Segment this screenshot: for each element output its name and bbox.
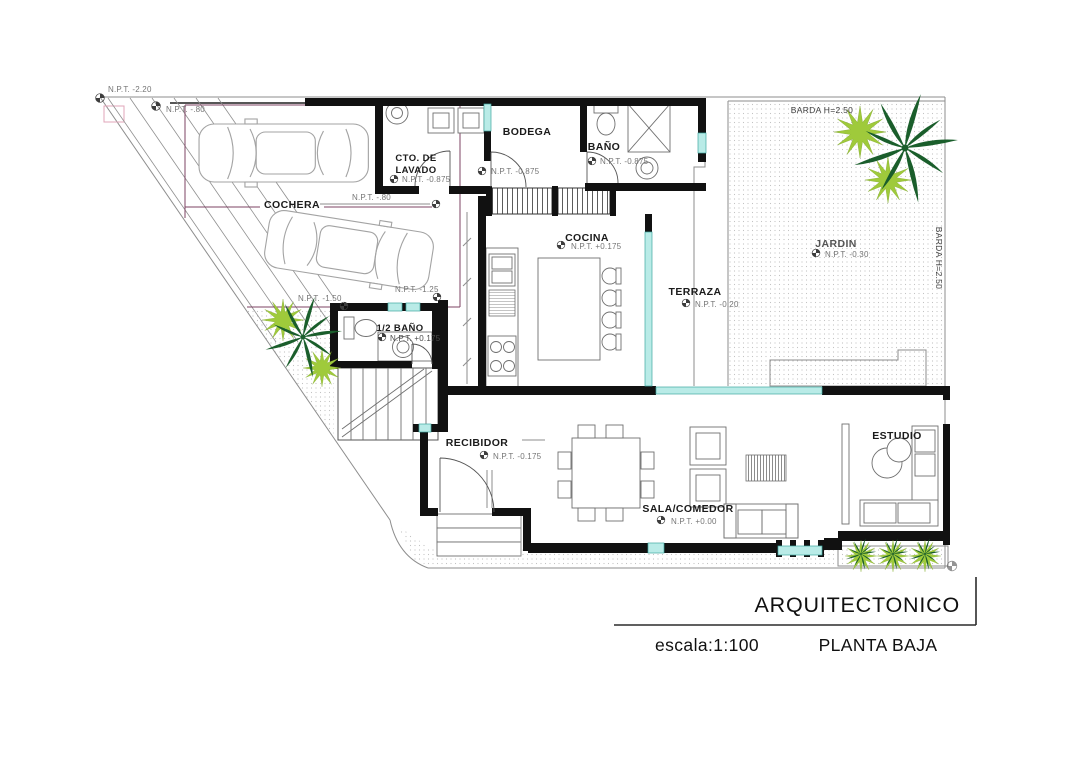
estudio-label: ESTUDIO (872, 430, 921, 442)
dining-table (572, 438, 640, 508)
floor-plan-page: N.P.T. -2.20 N.P.T. -.80 N.P.T. -1.50 N.… (0, 0, 1074, 768)
terraza-label: TERRAZA (669, 286, 722, 298)
terraza-npt: N.P.T. -0.20 (695, 300, 739, 309)
jardin-npt: N.P.T. -0.30 (825, 250, 869, 259)
npt-acera: N.P.T. -.80 (166, 105, 205, 114)
level-marker-icon (478, 167, 486, 175)
level-marker-icon (812, 249, 820, 257)
fern-icon (877, 540, 909, 572)
level-marker-icon (378, 333, 386, 341)
barda-top-label: BARDA H=2.50 (791, 105, 853, 115)
npt-patio: N.P.T. -1.25 (395, 285, 439, 294)
entry-steps (437, 514, 521, 556)
fern-icon (845, 540, 877, 572)
bodega-label: BODEGA (503, 126, 552, 138)
lavado-npt: N.P.T. -0.875 (402, 175, 451, 184)
level-marker-icon (682, 299, 690, 307)
recibidor-label: RECIBIDOR (446, 437, 509, 449)
jardin-label: JARDIN (815, 238, 857, 250)
laundry-fixtures (386, 102, 484, 133)
stairs-service (492, 188, 610, 214)
lavado-label-1: CTO. DE (395, 153, 436, 164)
level-marker-icon (480, 451, 488, 459)
car-bottom (262, 203, 437, 296)
fern-icon (909, 540, 941, 572)
floor-plan-svg: N.P.T. -2.20 N.P.T. -.80 N.P.T. -1.50 N.… (0, 0, 1074, 768)
cocina-npt: N.P.T. +0.175 (571, 242, 622, 251)
level-marker-icon (433, 293, 441, 301)
level-marker-icon (390, 175, 398, 183)
corner-marker-icon (947, 561, 957, 571)
npt-rampa: N.P.T. -1.50 (298, 294, 342, 303)
bano-label: BAÑO (588, 140, 621, 153)
drawing-plan-name: PLANTA BAJA (819, 635, 938, 655)
level-marker-icon (557, 241, 565, 249)
level-marker-icon (96, 94, 105, 103)
bano-npt: N.P.T. -0.875 (600, 157, 649, 166)
rug (746, 455, 786, 481)
dining-set (558, 425, 654, 521)
cochera-label: COCHERA (264, 199, 320, 211)
barda-right-label: BARDA H=2.50 (934, 227, 944, 289)
level-marker-icon (657, 516, 665, 524)
level-marker-icon (588, 157, 596, 165)
car-top (199, 119, 368, 187)
kitchen-island (538, 258, 600, 360)
cochera-npt: N.P.T. -.80 (352, 193, 391, 202)
npt-terreno: N.P.T. -2.20 (108, 85, 152, 94)
title-block: ARQUITECTONICO escala:1:100 PLANTA BAJA (614, 577, 976, 655)
sofa (724, 504, 798, 538)
drawing-scale: escala:1:100 (655, 635, 759, 655)
sala-npt: N.P.T. +0.00 (671, 517, 717, 526)
bar-stools (602, 268, 621, 350)
bodega-npt: N.P.T. -0.875 (491, 167, 540, 176)
level-marker-icon (152, 102, 161, 111)
sala-label: SALA/COMEDOR (642, 503, 733, 515)
medio-bano-npt: N.P.T. +0.175 (390, 334, 441, 343)
recibidor-npt: N.P.T. -0.175 (493, 452, 542, 461)
level-marker-icon (432, 200, 440, 208)
drawing-title: ARQUITECTONICO (754, 593, 960, 617)
medio-bano-label: 1/2 BAÑO (376, 323, 423, 334)
